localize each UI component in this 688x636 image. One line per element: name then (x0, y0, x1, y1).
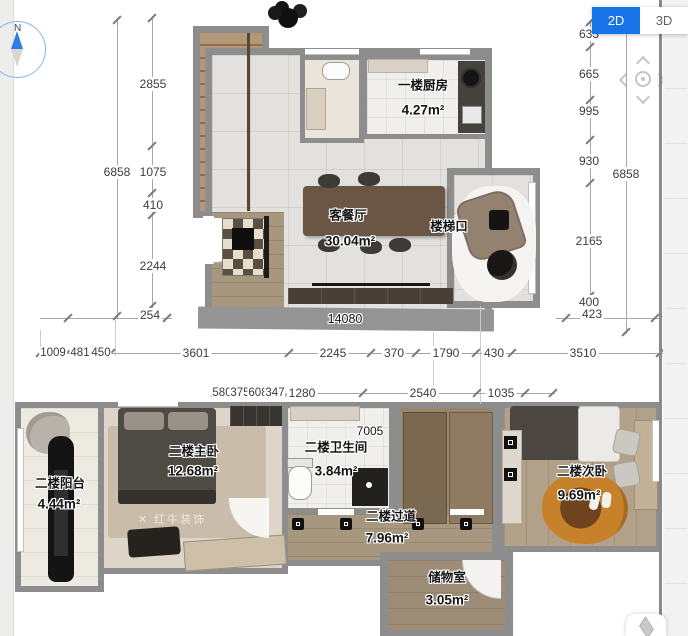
downlight (340, 518, 352, 530)
dim-row2-6: 1035 (486, 386, 517, 400)
dim-row1-6: 1790 (431, 346, 462, 360)
right-panel-strip (663, 0, 688, 636)
view-3d-button[interactable]: 3D (640, 7, 688, 34)
pillow (124, 412, 164, 430)
label-stairwell: 楼梯口 (430, 216, 468, 235)
dim-right-2: 995 (577, 104, 601, 118)
kitchen-counter[interactable] (368, 59, 428, 73)
watermark-logo-icon: ✕ (138, 514, 149, 526)
toilet[interactable] (288, 466, 312, 500)
window (118, 400, 178, 407)
vanity[interactable] (306, 88, 326, 130)
dim-row1-8: 3510 (568, 346, 599, 360)
dim-row1-4: 2245 (318, 346, 349, 360)
area-storage-f2: 3.05m² (426, 593, 469, 608)
watermark-text: 红牛装饰 (154, 514, 206, 526)
downlight (292, 518, 304, 530)
chair[interactable] (358, 172, 380, 186)
dim-left-2: 410 (141, 198, 165, 212)
label-storage-f2: 储物室 (428, 567, 466, 586)
chair[interactable] (612, 428, 642, 458)
duvet (578, 406, 620, 462)
label-corridor-f2: 二楼过道 (366, 506, 416, 525)
dim-row1-0: 1009 (39, 347, 67, 359)
stove[interactable] (461, 68, 481, 88)
area-bath-f2: 3.84m² (315, 464, 358, 479)
dim-right-3: 930 (577, 154, 601, 168)
floorplan-canvas[interactable]: ✕ 红牛装饰 一楼厨房 4.27m² 客餐厅 30.04m² 楼梯口 二楼阳台 … (0, 0, 688, 636)
dim-row1-5: 370 (382, 346, 406, 360)
view-2d-button[interactable]: 2D (592, 7, 640, 34)
label-master-f2: 二楼主卧 (169, 441, 219, 460)
wardrobe[interactable] (230, 406, 282, 426)
stair-rail (247, 33, 250, 211)
pan-up-icon[interactable] (636, 56, 650, 70)
dim-bottom-total: 14080 (328, 312, 363, 326)
dim-floor2-width: 7005 (357, 424, 384, 438)
bed-bench[interactable] (118, 490, 216, 504)
label-balcony-f2: 二楼阳台 (35, 473, 85, 492)
dim-row1-7: 430 (482, 346, 506, 360)
orbit-cube-button[interactable] (626, 614, 666, 636)
dim-row2-3: 347 (264, 387, 285, 399)
door-opening (318, 509, 354, 515)
left-panel-strip (0, 0, 14, 636)
shower-drain (366, 482, 372, 488)
side-table[interactable] (489, 210, 509, 230)
sink[interactable] (462, 106, 482, 124)
dim-row1-3: 3601 (181, 346, 212, 360)
dim-line (556, 318, 660, 319)
area-kitchen-f1: 4.27m² (402, 103, 445, 118)
label-bedroom2-f2: 二楼次卧 (557, 461, 607, 480)
pillow (168, 412, 208, 430)
wardrobe-panel[interactable] (449, 412, 493, 524)
downlight (504, 468, 517, 481)
dim-left-1: 1075 (138, 165, 169, 179)
dim-row2-5: 2540 (408, 386, 439, 400)
view-mode-toggle: 2D 3D (592, 7, 688, 34)
recenter-icon[interactable] (635, 71, 651, 87)
window (17, 428, 24, 552)
plant[interactable] (268, 6, 282, 20)
pan-down-icon[interactable] (636, 90, 650, 104)
window (305, 49, 359, 55)
label-living-f1: 客餐厅 (329, 205, 367, 224)
storage-bench[interactable] (127, 526, 181, 558)
watermark: ✕ 红牛装饰 (138, 511, 206, 527)
label-bath-f2: 二楼卫生间 (305, 437, 368, 456)
dim-right-1: 665 (577, 67, 601, 81)
panel-divider (659, 0, 662, 636)
area-balcony-f2: 4.44m² (38, 497, 81, 512)
chair[interactable] (389, 238, 411, 252)
dim-row1-2: 450 (90, 347, 111, 359)
dining-table[interactable] (303, 186, 445, 236)
compass[interactable]: N (0, 21, 46, 78)
chair[interactable] (318, 174, 340, 188)
door-opening (450, 509, 484, 515)
window (420, 49, 470, 55)
dim-left-offset: 254 (138, 308, 162, 322)
area-bedroom2-f2: 9.69m² (558, 488, 601, 503)
round-table[interactable] (487, 250, 517, 280)
dim-right-total: 6858 (611, 167, 642, 181)
downlight (504, 436, 517, 449)
soundbar[interactable] (312, 283, 430, 286)
dim-row2-4: 1280 (287, 386, 318, 400)
tv-screen[interactable] (264, 216, 269, 278)
round-rug[interactable] (542, 472, 628, 544)
tv-desk[interactable] (232, 228, 254, 250)
dim-right-offset: 423 (580, 307, 604, 321)
cube-icon (639, 616, 654, 636)
dim-left-total: 6858 (102, 165, 133, 179)
dim-right-4: 2165 (574, 234, 605, 248)
area-living-f1: 30.04m² (325, 234, 375, 249)
tv-cabinet[interactable] (288, 288, 453, 304)
downlight (460, 518, 472, 530)
dim-left-0: 2855 (138, 77, 169, 91)
sink-counter[interactable] (290, 406, 360, 421)
compass-needle-south-icon (11, 49, 23, 67)
compass-needle-icon (11, 31, 23, 49)
dim-row1-1: 481 (69, 347, 90, 359)
area-master-f2: 12.68m² (168, 464, 218, 479)
area-corridor-f2: 7.96m² (366, 531, 409, 546)
dim-left-3: 2244 (138, 259, 169, 273)
toilet[interactable] (322, 62, 350, 80)
label-kitchen-f1: 一楼厨房 (398, 75, 448, 94)
